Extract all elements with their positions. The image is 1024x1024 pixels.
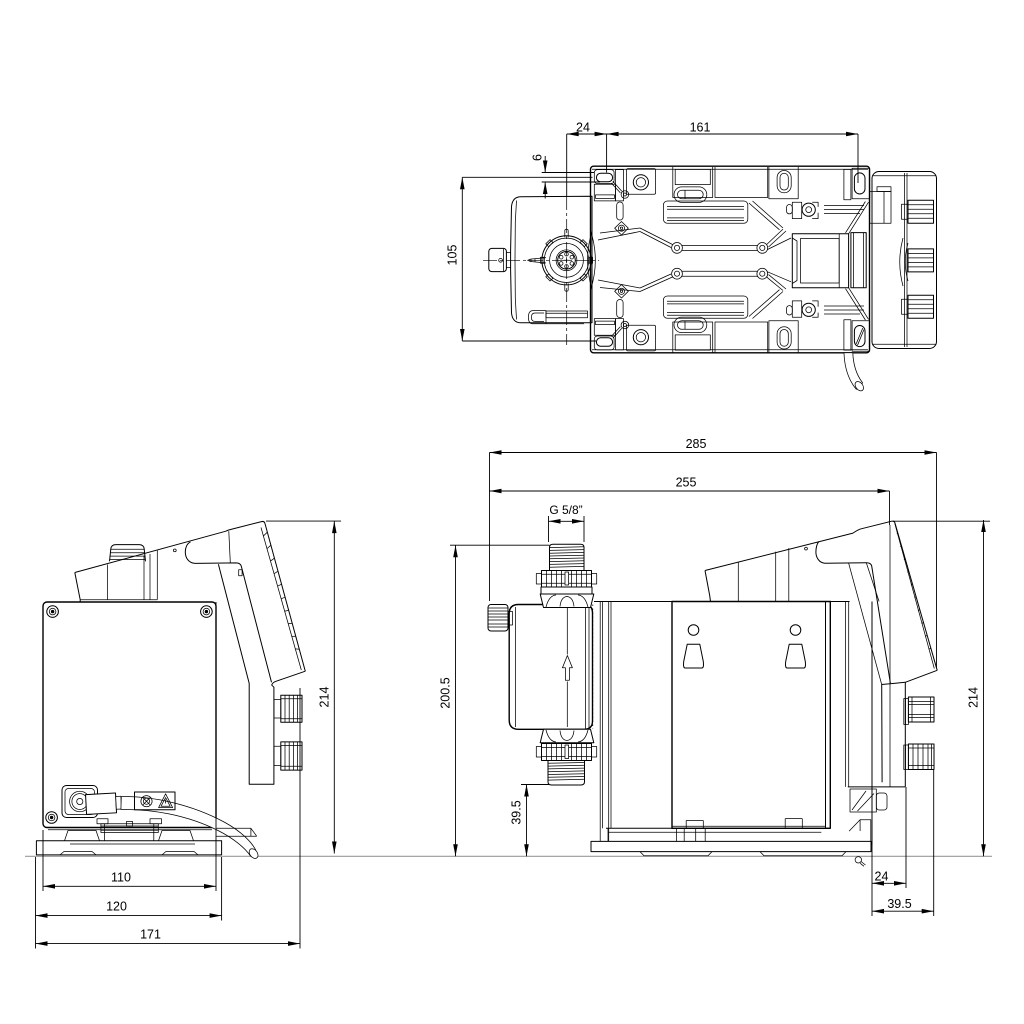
svg-text:255: 255 (676, 476, 697, 490)
svg-text:105: 105 (446, 245, 460, 266)
svg-text:285: 285 (686, 437, 707, 451)
svg-text:G 5/8”: G 5/8” (549, 503, 582, 517)
svg-text:39.5: 39.5 (510, 800, 524, 824)
svg-text:120: 120 (106, 900, 127, 914)
svg-text:24: 24 (875, 870, 889, 884)
svg-text:6: 6 (531, 154, 545, 161)
svg-text:200.5: 200.5 (439, 677, 453, 708)
svg-text:214: 214 (967, 687, 981, 708)
svg-text:110: 110 (111, 871, 131, 885)
svg-text:24: 24 (576, 121, 590, 135)
svg-text:171: 171 (140, 928, 161, 942)
svg-text:39.5: 39.5 (887, 897, 911, 911)
svg-text:161: 161 (690, 121, 711, 135)
svg-text:214: 214 (318, 687, 332, 708)
